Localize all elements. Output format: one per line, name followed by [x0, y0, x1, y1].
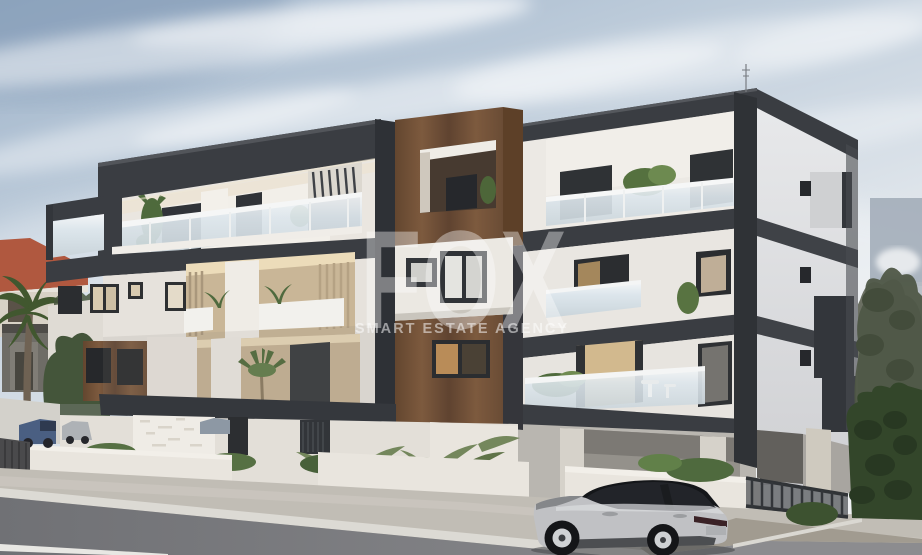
svg-text:SMART ESTATE AGENCY: SMART ESTATE AGENCY	[355, 321, 569, 337]
